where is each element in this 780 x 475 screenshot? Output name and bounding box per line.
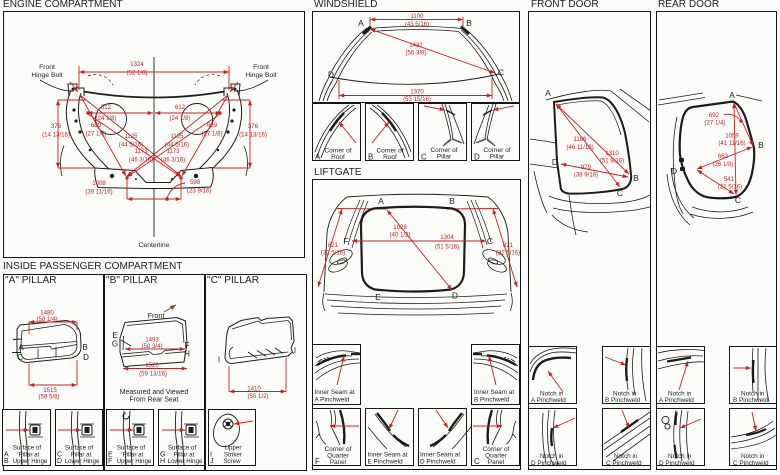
- svg-text:(58 1/4): (58 1/4): [36, 316, 57, 323]
- svg-text:Upper Hinge: Upper Hinge: [13, 458, 48, 465]
- svg-text:(58 3/4): (58 3/4): [141, 343, 162, 350]
- svg-text:J: J: [292, 347, 296, 356]
- svg-text:Upper Hinge: Upper Hinge: [117, 458, 152, 465]
- svg-text:J: J: [210, 458, 214, 465]
- svg-text:Lower Hinge: Lower Hinge: [65, 458, 100, 465]
- svg-text:D: D: [83, 353, 89, 362]
- svg-text:Screw: Screw: [223, 458, 241, 465]
- svg-text:C: C: [17, 353, 23, 362]
- svg-text:Lower Hinge: Lower Hinge: [168, 458, 203, 465]
- svg-text:H: H: [160, 458, 165, 465]
- svg-text:G: G: [112, 340, 118, 349]
- svg-text:Measured and Viewed: Measured and Viewed: [120, 389, 189, 396]
- svg-text:1520: 1520: [145, 362, 159, 369]
- svg-text:1410: 1410: [247, 386, 261, 393]
- svg-text:(59 5/8): (59 5/8): [38, 394, 59, 401]
- svg-text:F: F: [108, 458, 112, 465]
- svg-text:(55 1/2): (55 1/2): [247, 393, 268, 400]
- svg-text:B: B: [82, 343, 87, 352]
- svg-text:D: D: [57, 458, 62, 465]
- svg-text:H: H: [184, 350, 190, 359]
- svg-text:Front: Front: [148, 311, 165, 320]
- svg-text:B: B: [4, 458, 9, 465]
- svg-text:A: A: [18, 343, 24, 352]
- svg-text:(59 13/16): (59 13/16): [139, 371, 167, 378]
- svg-text:I: I: [218, 356, 220, 365]
- svg-text:From Rear Seat: From Rear Seat: [129, 397, 178, 404]
